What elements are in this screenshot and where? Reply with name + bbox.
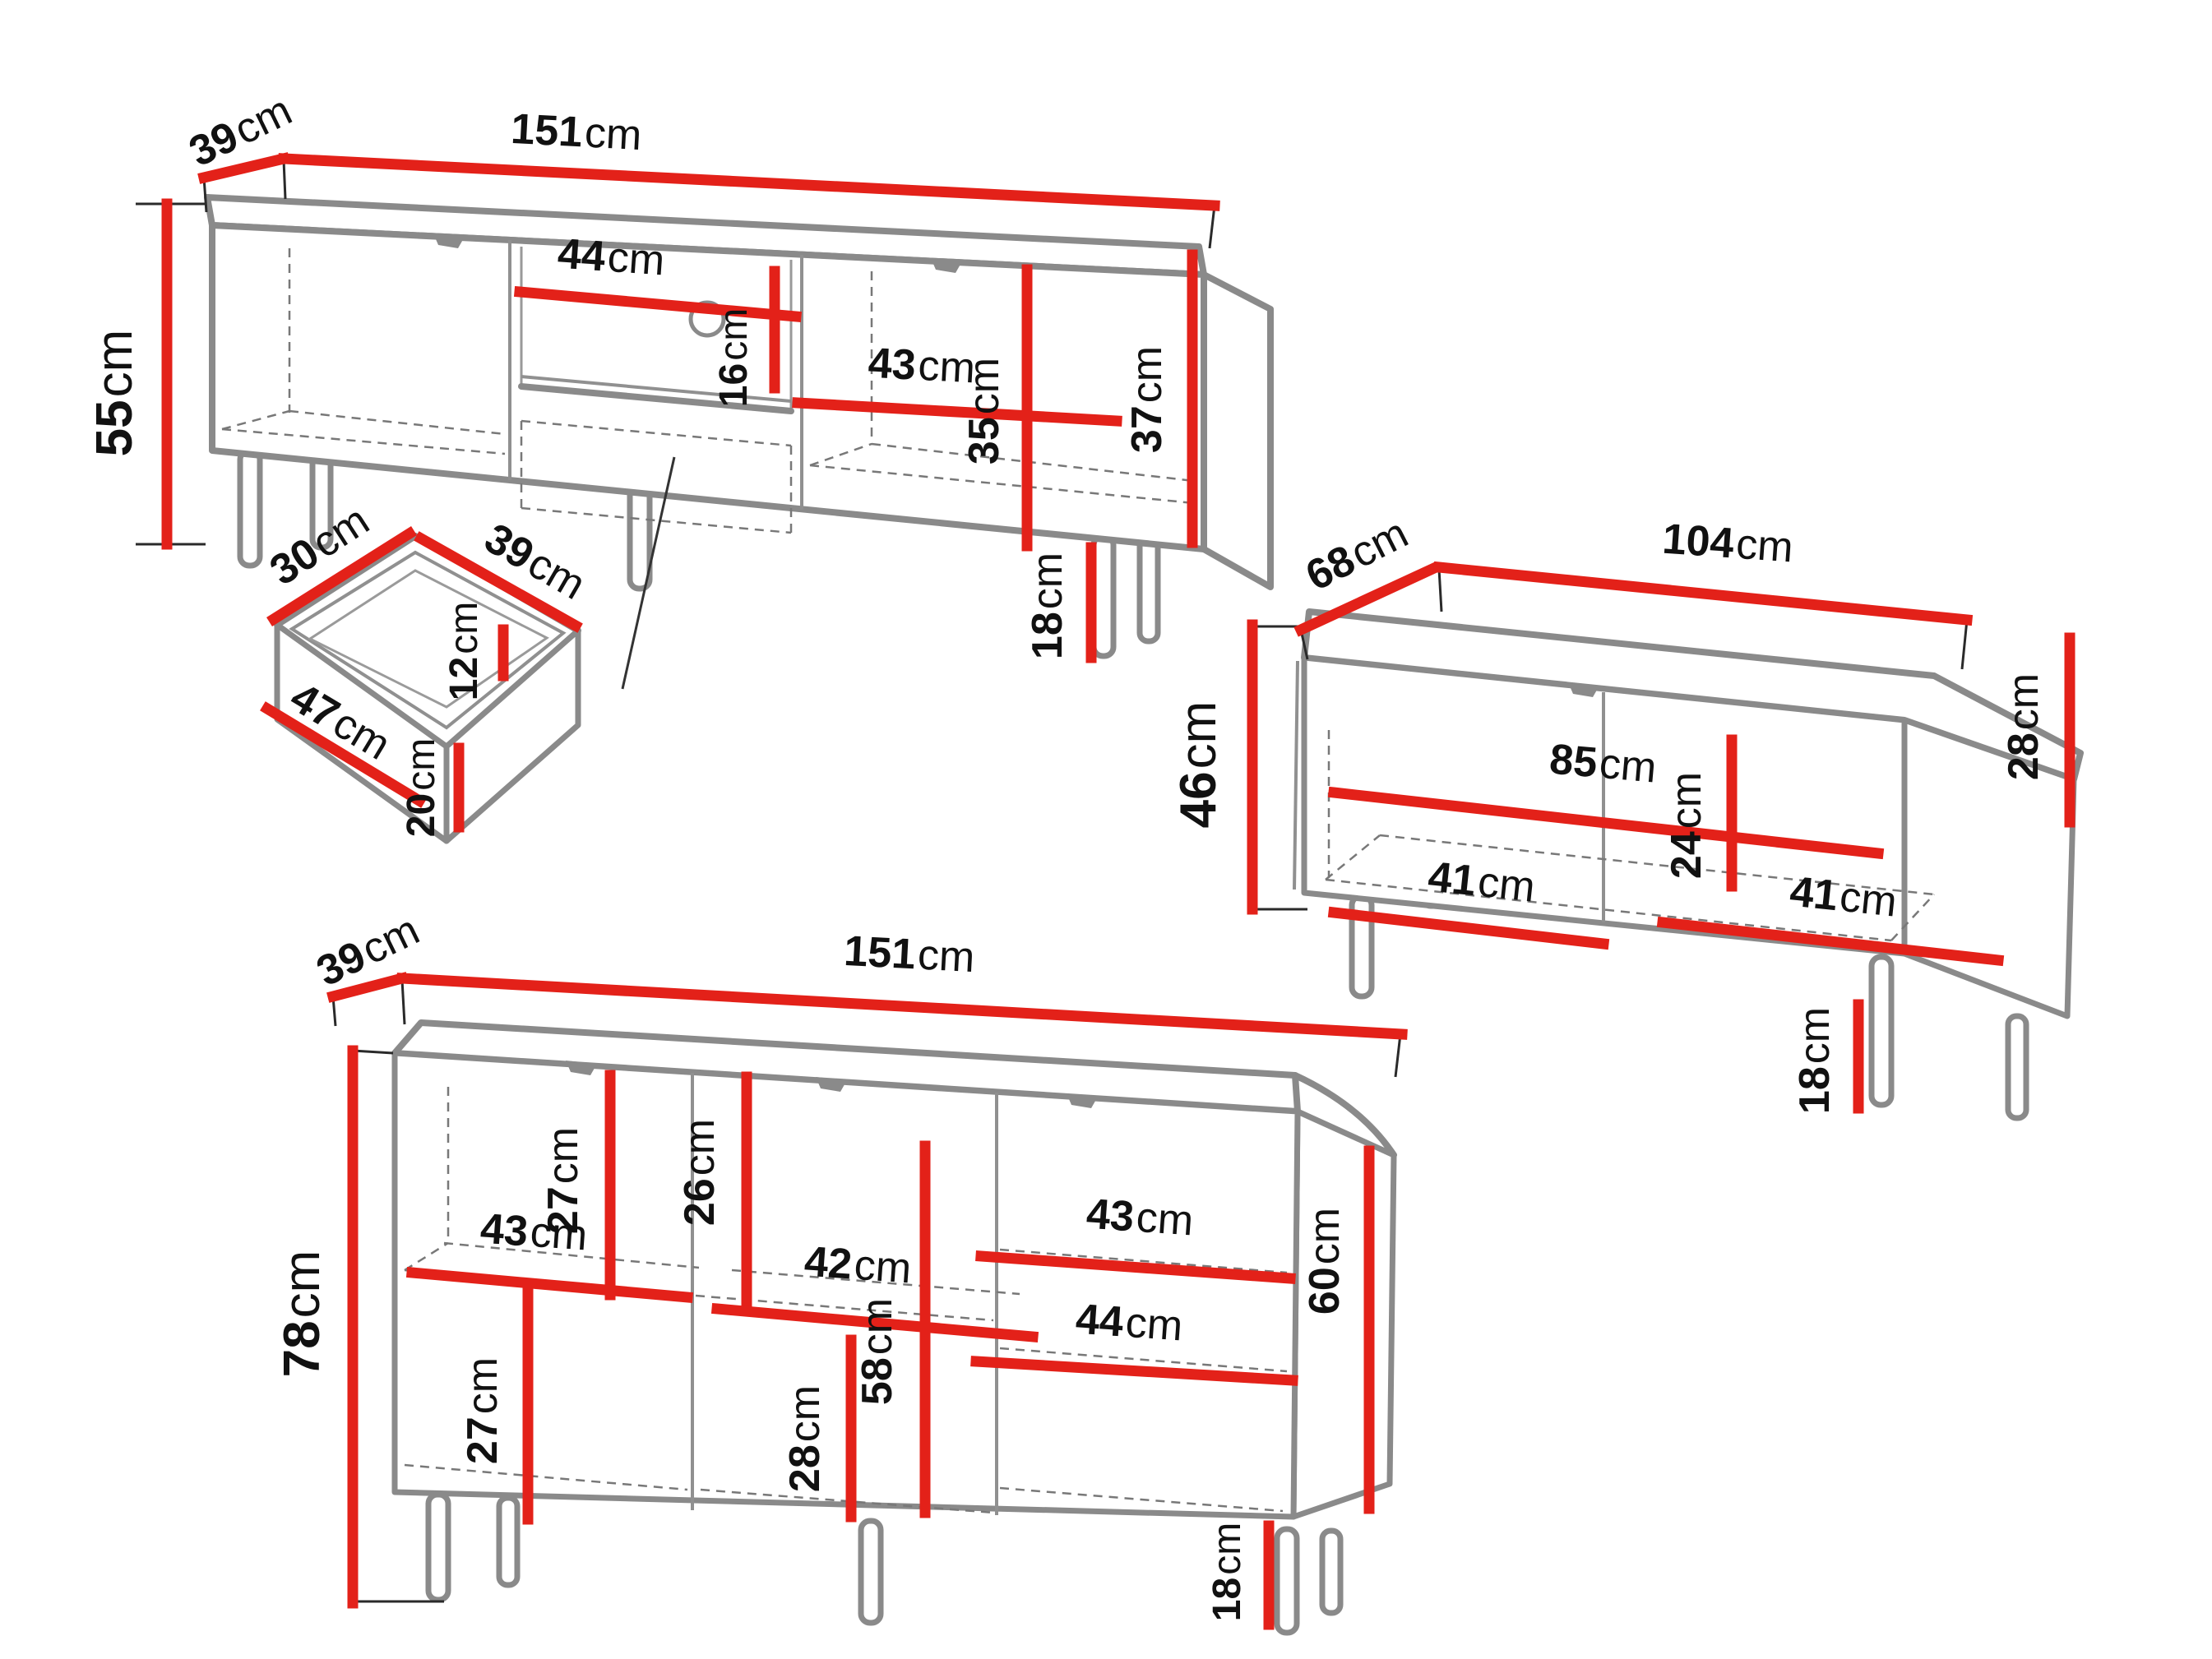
sideboard-leg (861, 1521, 881, 1623)
tv-stand-side-panel (1204, 275, 1270, 587)
dim-label-drawer-front-height: 20cm (400, 738, 443, 837)
sideboard-leg (428, 1495, 448, 1600)
dim-label-sb-right-upper-shelf: 43cm (1085, 1190, 1195, 1245)
tv-stand-leg (1140, 533, 1158, 641)
dim-label-sb-middle-lower-height: 28cm (781, 1385, 829, 1492)
dim-label-tv-right-height: 35cm (960, 358, 1008, 464)
dim-label-sb-middle-shelf: 42cm (803, 1238, 913, 1293)
sideboard-leg (499, 1498, 517, 1585)
dim-label-table-leg: 18cm (1791, 1007, 1839, 1114)
dim-label-tv-leg: 18cm (1024, 552, 1071, 659)
dim-label-sb-left-lower-height: 27cm (459, 1357, 507, 1464)
dim-label-drawer-back-height: 12cm (442, 602, 486, 700)
dim-label-table-side-height: 28cm (2000, 673, 2048, 780)
dim-label-sb-leg: 18cm (1205, 1523, 1249, 1621)
extension-line (284, 160, 285, 199)
dim-label-table-height: 46cm (1170, 701, 1227, 829)
dim-label-tv-side-height: 37cm (1123, 346, 1171, 453)
dim-label-sb-right-lower-shelf: 44cm (1074, 1296, 1184, 1351)
sideboard-leg (1322, 1531, 1340, 1613)
dim-label-sb-left-shelf: 43cm (479, 1205, 589, 1260)
dim-label-sb-middle-inner-height: 58cm (854, 1298, 901, 1405)
tv-stand-leg (240, 451, 260, 566)
coffee-table-leg (2008, 1016, 2026, 1118)
furniture-dimension-diagram: 39cm 151cm 55cm 44cm 16cm 43cm 35cm 37cm… (0, 0, 2212, 1659)
coffee-table-leg (1872, 957, 1891, 1105)
tv-stand-leg (1094, 536, 1113, 656)
dim-label-sb-height: 78cm (274, 1250, 331, 1378)
dim-label-table-shelf-height: 24cm (1663, 772, 1710, 879)
dim-label-sb-right-inner-height: 60cm (1301, 1208, 1349, 1315)
dim-label-sb-middle-upper-height: 26cm (676, 1119, 724, 1226)
dim-label-sb-width: 151cm (843, 927, 976, 982)
dim-label-tv-shelf-width: 44cm (556, 230, 666, 285)
sideboard-leg (1277, 1529, 1297, 1633)
dim-label-tv-shelf-height: 16cm (712, 308, 756, 407)
dim-label-tv-height: 55cm (86, 330, 143, 457)
dim-label-tv-width: 151cm (510, 105, 643, 159)
dim-label-table-inner-width: 85cm (1548, 736, 1659, 793)
dim-label-table-width: 104cm (1661, 515, 1795, 572)
